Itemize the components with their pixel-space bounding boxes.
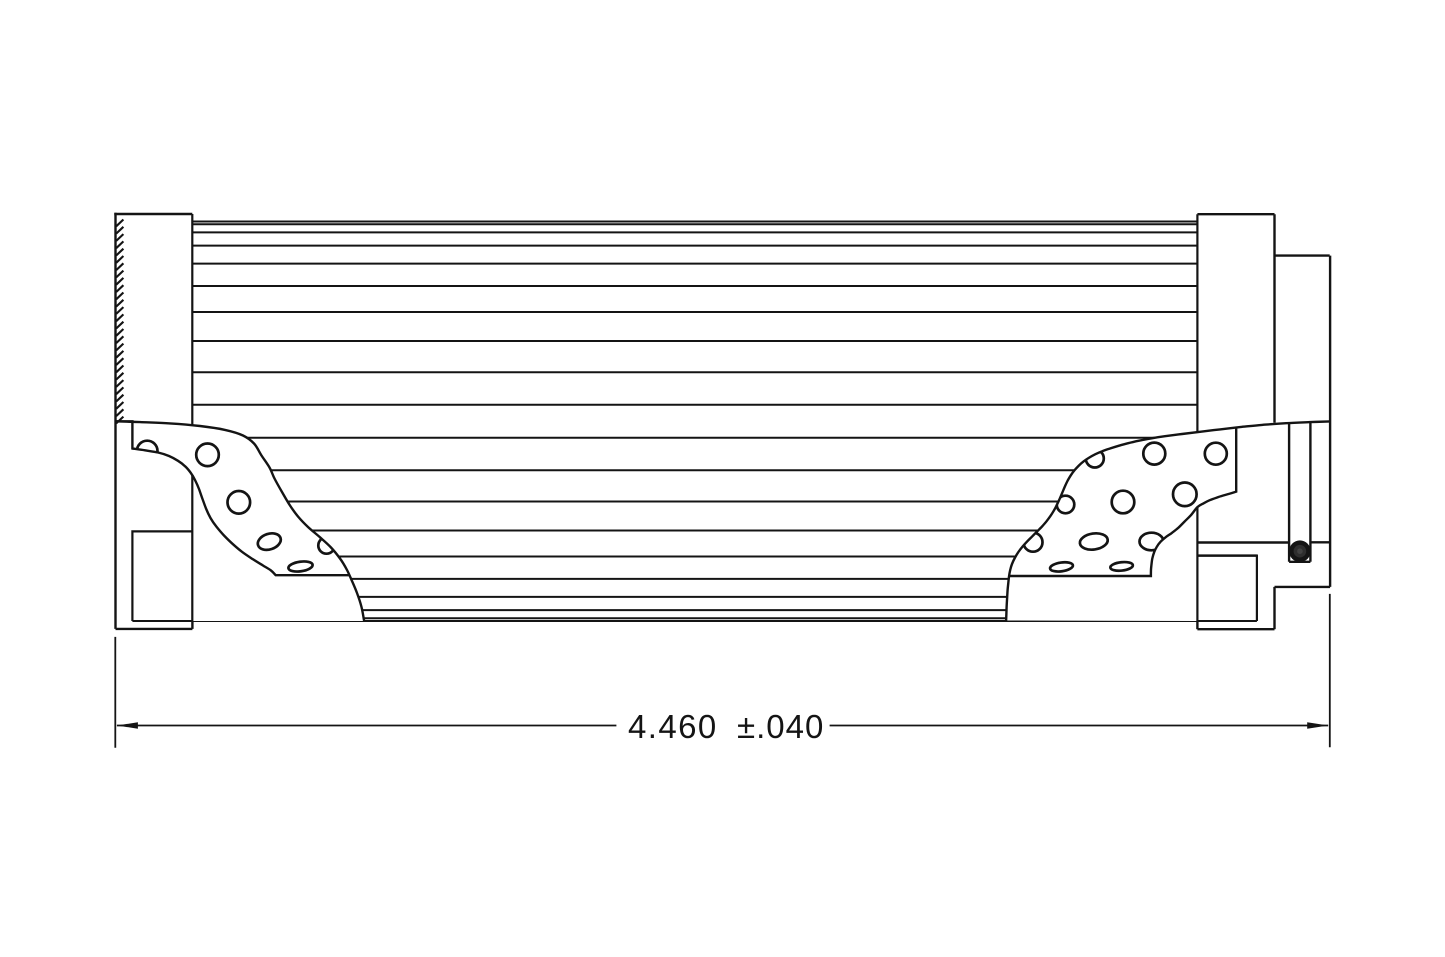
svg-text:±.040: ±.040 [737,708,824,745]
svg-text:4.460: 4.460 [628,708,718,745]
